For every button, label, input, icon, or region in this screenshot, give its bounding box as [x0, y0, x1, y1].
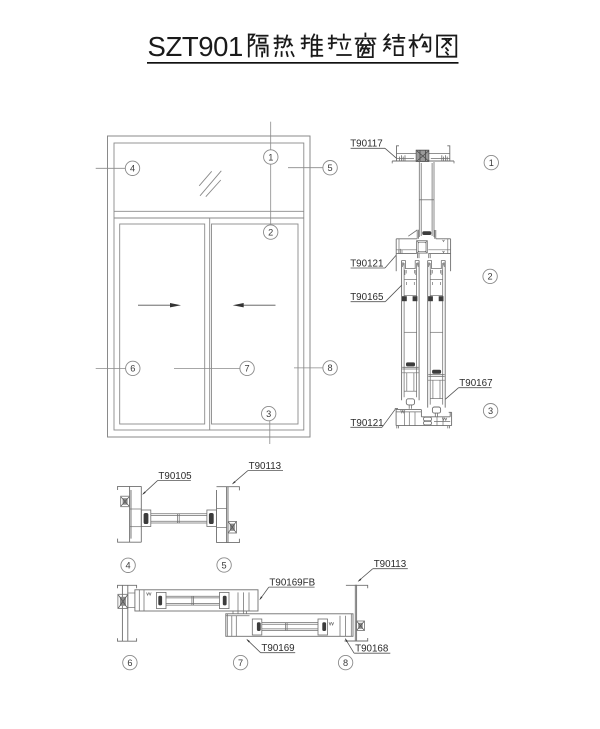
svg-text:6: 6: [130, 364, 135, 374]
svg-text:2: 2: [488, 272, 493, 282]
svg-text:4: 4: [126, 561, 131, 571]
svg-text:8: 8: [328, 363, 333, 373]
svg-text:1: 1: [268, 152, 273, 162]
svg-text:5: 5: [222, 560, 227, 570]
svg-text:3: 3: [266, 409, 271, 419]
svg-text:7: 7: [245, 364, 250, 374]
svg-text:6: 6: [127, 658, 132, 668]
svg-text:3: 3: [488, 406, 493, 416]
svg-text:SZT901: SZT901: [148, 31, 243, 62]
svg-text:7: 7: [238, 658, 243, 668]
svg-text:8: 8: [343, 658, 348, 668]
svg-text:1: 1: [489, 158, 494, 168]
svg-text:2: 2: [268, 227, 273, 237]
svg-text:5: 5: [328, 163, 333, 173]
svg-text:4: 4: [130, 164, 135, 174]
